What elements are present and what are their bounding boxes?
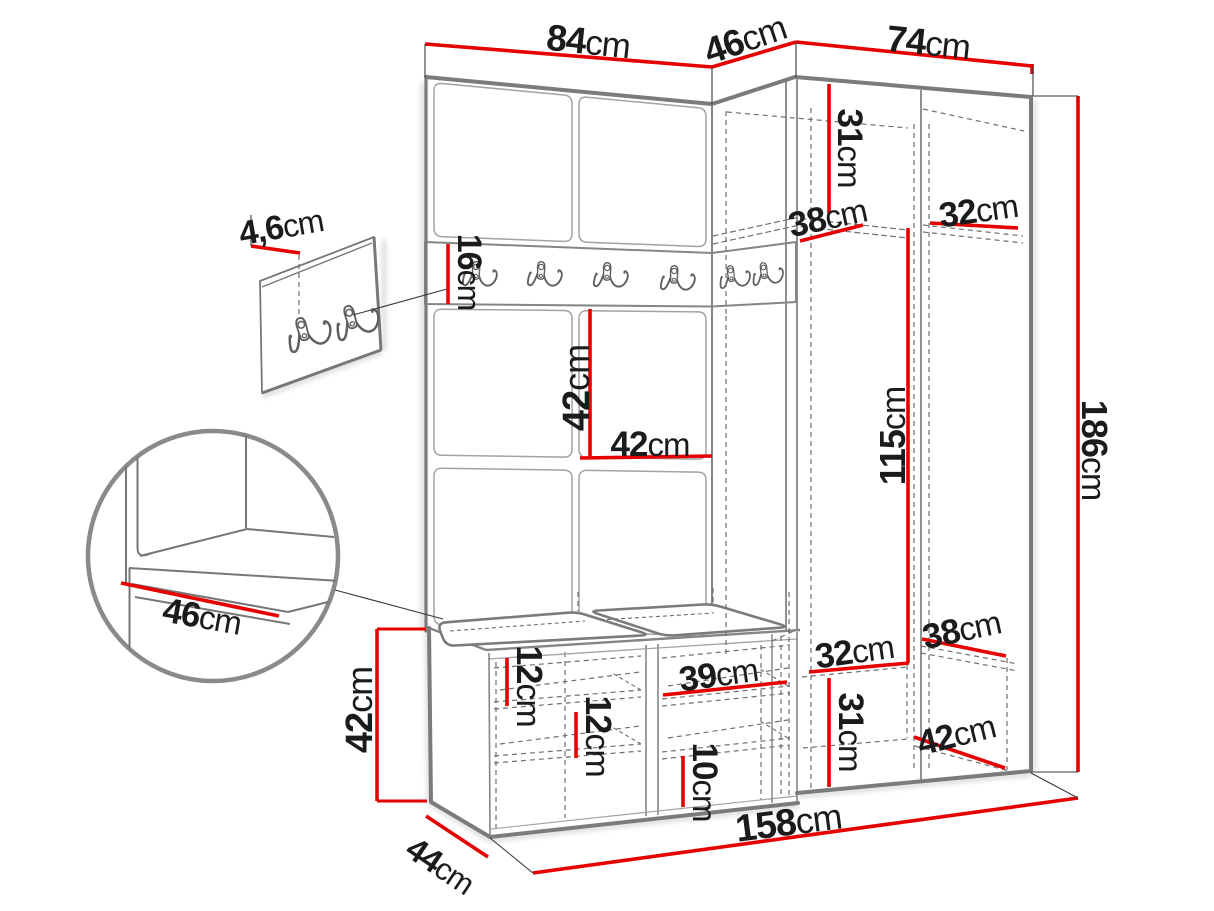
- svg-text:186cm: 186cm: [1074, 400, 1115, 500]
- svg-text:12cm: 12cm: [578, 695, 619, 776]
- svg-text:12cm: 12cm: [509, 645, 550, 726]
- svg-text:42cm: 42cm: [556, 345, 598, 431]
- svg-text:31cm: 31cm: [830, 109, 869, 188]
- svg-text:31cm: 31cm: [831, 693, 870, 772]
- svg-text:16cm: 16cm: [450, 234, 488, 310]
- svg-text:42cm: 42cm: [611, 425, 690, 464]
- svg-text:10cm: 10cm: [685, 743, 724, 822]
- svg-text:42cm: 42cm: [339, 667, 381, 753]
- svg-text:115cm: 115cm: [872, 387, 913, 485]
